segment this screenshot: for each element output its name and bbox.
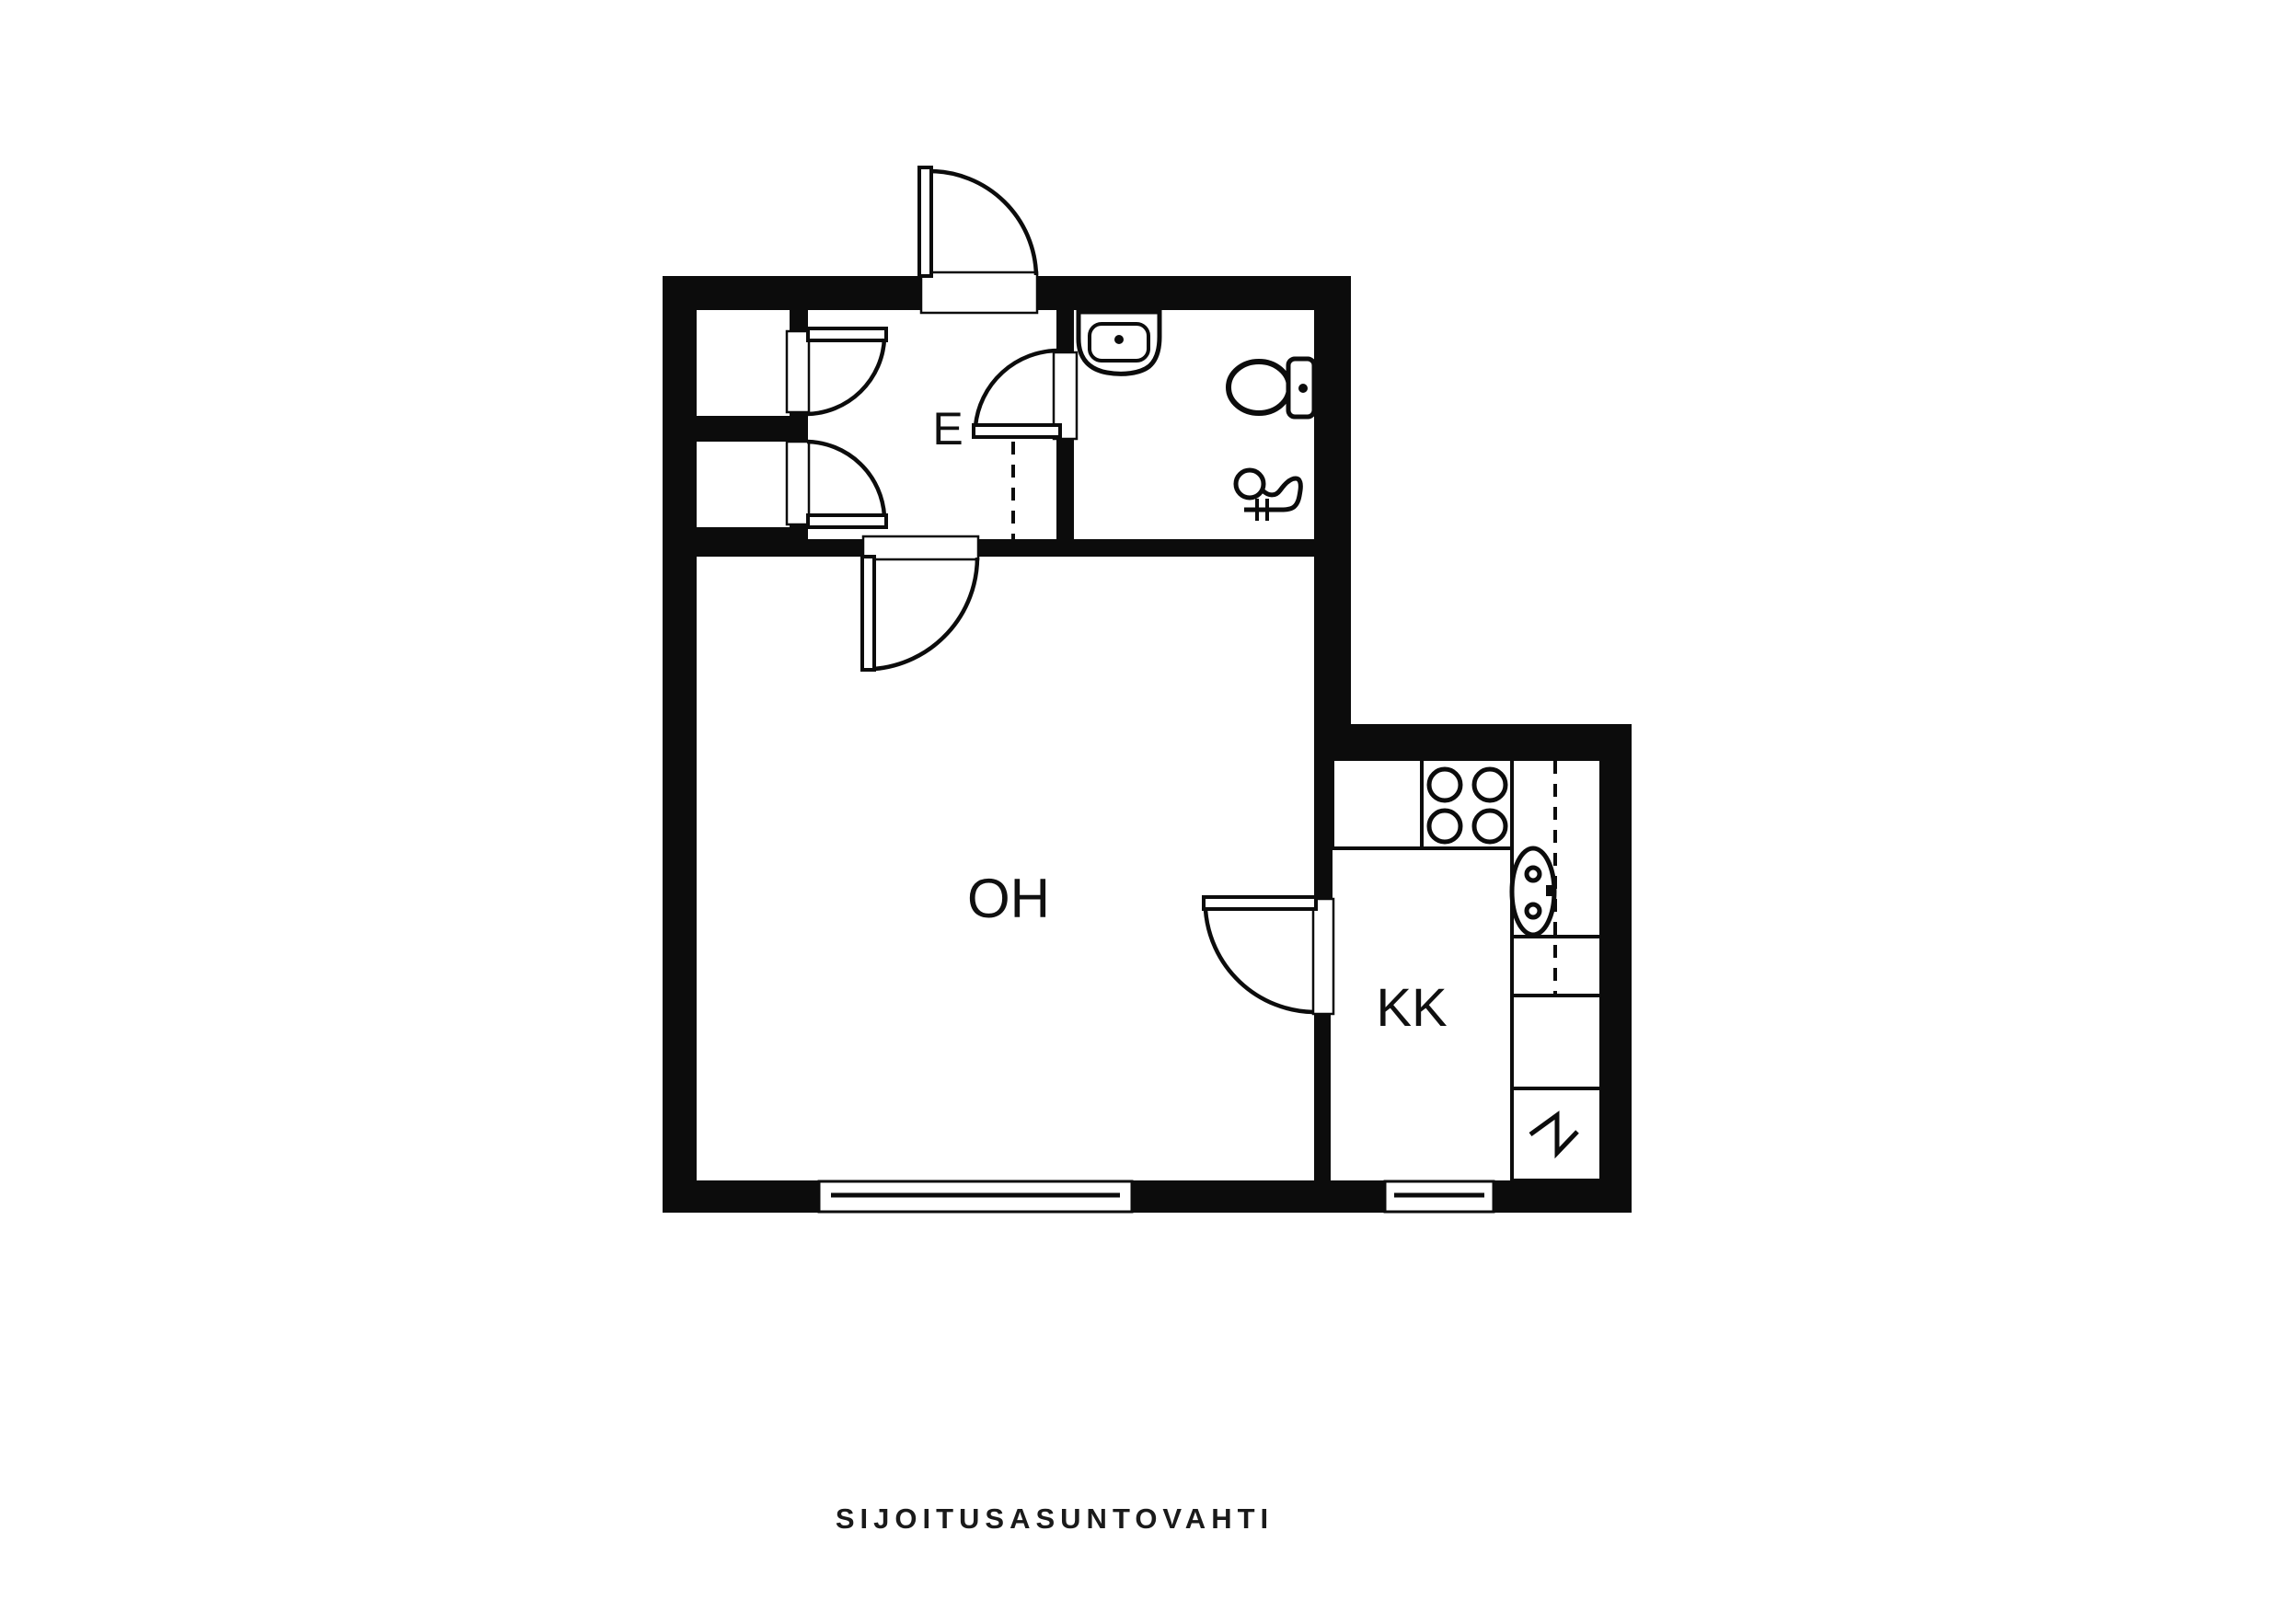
- wall-kitchenette-partition-upper: [1314, 757, 1333, 899]
- wall-right-upper: [1314, 276, 1351, 757]
- living-room-kitchenette-door: [1204, 897, 1316, 1012]
- bathroom-sink-icon: [1079, 312, 1160, 374]
- living-kitchenette-door-opening: [1313, 899, 1333, 1014]
- kitchenette-window: [1385, 1181, 1494, 1212]
- living-room-window: [819, 1181, 1132, 1212]
- closet-bottom-door: [807, 442, 886, 527]
- floor-plan-drawing: E OH KK SIJOITUSASUNTOVAHTI: [0, 0, 2296, 1623]
- entry-door-opening: [921, 272, 1037, 313]
- wall-kitchen-right: [1601, 724, 1632, 1213]
- wall-left: [663, 276, 697, 1213]
- room-label-kitchenette: KK: [1376, 978, 1448, 1038]
- walls: [663, 276, 1632, 1213]
- floor-plan-page: E OH KK SIJOITUSASUNTOVAHTI: [0, 0, 2296, 1623]
- entry-door: [919, 167, 1036, 276]
- wall-kitchenette-partition-lower: [1314, 1014, 1331, 1180]
- kitchen-fixtures: [1333, 759, 1601, 1180]
- floor-drain-icon: [1236, 470, 1300, 521]
- brand-text: SIJOITUSASUNTOVAHTI: [836, 1502, 1274, 1535]
- wall-closet-mid: [697, 416, 808, 442]
- closet-bottom-door-opening: [787, 442, 809, 524]
- closet-top-door-opening: [787, 331, 809, 412]
- room-label-living-room: OH: [967, 868, 1050, 929]
- hallway-living-door-opening: [863, 536, 978, 559]
- room-label-hallway: E: [932, 403, 963, 455]
- bathroom-door: [974, 351, 1060, 437]
- closet-top-door: [807, 328, 886, 414]
- wall-kitchen-top: [1314, 724, 1632, 757]
- hallway-living-room-door: [862, 557, 977, 670]
- kitchen-sink-icon: [1512, 848, 1554, 935]
- toilet-icon: [1229, 359, 1314, 417]
